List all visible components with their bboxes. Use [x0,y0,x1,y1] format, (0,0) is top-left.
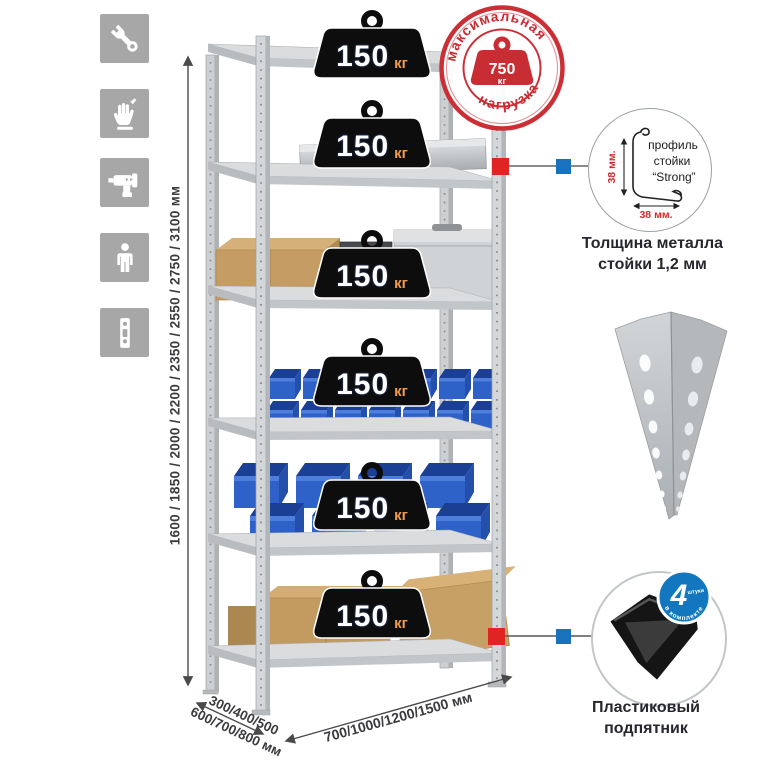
load-value: 150 [336,40,389,74]
profile-dim-horizontal: 38 мм. [639,209,672,221]
person-tile [100,233,149,282]
foot-caption: Пластиковый подпятник [556,698,736,740]
load-value: 150 [336,260,389,294]
foot-caption-line2: подпятник [556,719,736,740]
shelf-load-badge: 150кг [307,100,437,174]
profile-label-2: стойки [654,154,691,168]
load-unit: кг [394,507,408,524]
shelf-load-badge: 150кг [307,462,437,536]
shelf-load-badge: 150кг [307,10,437,84]
level-icon [104,312,146,354]
thickness-caption-line2: стойки 1,2 мм [560,255,745,276]
shelving-infographic: 1600 / 1850 / 2000 / 2200 / 2350 / 2550 … [0,0,765,765]
callout-profile-connector [492,158,588,175]
wrench-icon [104,18,146,60]
stamp-unit: кг [498,76,507,87]
profile-label-1: профиль [648,138,698,152]
height-dimension-label: 1600 / 1850 / 2000 / 2200 / 2350 / 2550 … [168,101,183,631]
level-tile [100,308,149,357]
load-unit: кг [394,275,408,292]
person-icon [104,237,146,279]
load-unit: кг [394,615,408,632]
profile-dim-vertical: 38 мм. [606,150,618,183]
drill-tile [100,158,149,207]
drill-icon [104,162,146,204]
shelf-4 [208,417,500,440]
load-value: 150 [336,130,389,164]
corner-post-image [605,305,745,533]
thickness-caption-line1: Толщина металла [560,234,745,255]
load-unit: кг [394,145,408,162]
foot-count-badge: 4 штуки в комплекте [655,568,713,626]
thickness-caption: Толщина металла стойки 1,2 мм [560,234,745,276]
wrench-tile [100,14,149,63]
load-unit: кг [394,383,408,400]
gloves-icon [104,93,146,135]
callout-foot-connector [488,628,592,645]
load-value: 150 [336,600,389,634]
profile-diagram: 38 мм. 38 мм. профиль стойки “Strong” [589,109,708,228]
load-value: 150 [336,368,389,402]
shelf-load-badge: 150кг [307,570,437,644]
profile-label-3: “Strong” [652,170,695,184]
shelf-load-badge: 150кг [307,230,437,304]
foot-caption-line1: Пластиковый [556,698,736,719]
load-value: 150 [336,492,389,526]
shelf-load-badge: 150кг [307,338,437,412]
profile-detail-circle: 38 мм. 38 мм. профиль стойки “Strong” [588,108,712,232]
badge-count: 4 [670,579,688,612]
gloves-tile [100,89,149,138]
load-unit: кг [394,55,408,72]
max-load-stamp: максимальная нагрузка 750 кг [436,2,568,134]
